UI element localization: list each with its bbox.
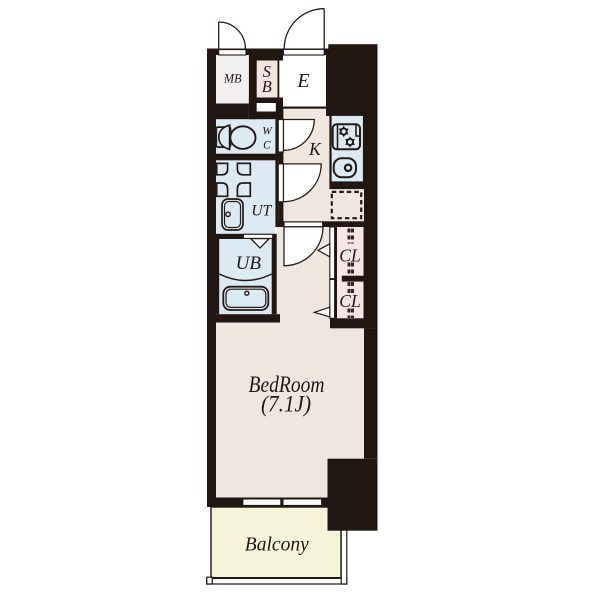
svg-text:W: W [262,126,273,138]
svg-text:MB: MB [223,71,241,86]
svg-text:UB: UB [236,253,262,274]
svg-text:C: C [263,140,271,152]
svg-text:CL: CL [339,245,360,265]
svg-text:K: K [308,139,322,159]
svg-text:(7.1J): (7.1J) [261,392,311,417]
svg-text:E: E [296,70,309,92]
svg-text:B: B [262,77,272,96]
svg-text:CL: CL [339,291,360,311]
svg-text:Balcony: Balcony [245,535,309,556]
svg-text:UT: UT [251,202,272,219]
